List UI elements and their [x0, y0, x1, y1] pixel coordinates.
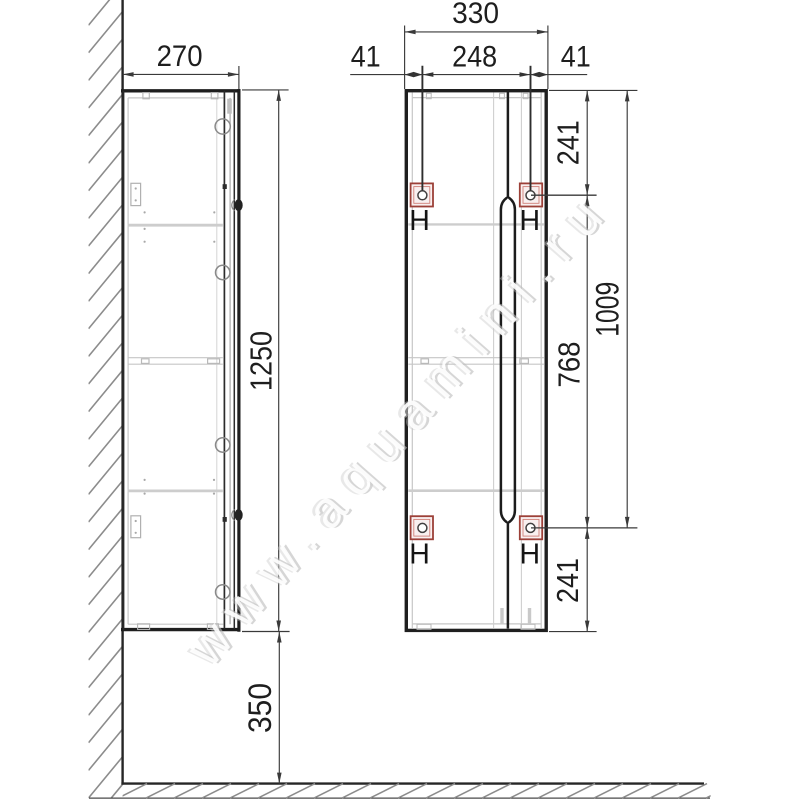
svg-text:248: 248 — [452, 40, 497, 73]
svg-text:41: 41 — [351, 40, 381, 73]
svg-text:1250: 1250 — [243, 331, 278, 391]
svg-text:768: 768 — [551, 342, 586, 388]
svg-text:1009: 1009 — [590, 282, 626, 337]
svg-text:41: 41 — [561, 40, 591, 73]
svg-text:330: 330 — [452, 0, 499, 30]
svg-text:H: H — [409, 539, 430, 571]
svg-text:350: 350 — [242, 683, 278, 733]
svg-text:H: H — [409, 205, 430, 237]
svg-text:241: 241 — [551, 120, 586, 165]
svg-text:H: H — [520, 539, 541, 571]
svg-text:241: 241 — [550, 558, 585, 603]
svg-text:270: 270 — [157, 40, 203, 73]
